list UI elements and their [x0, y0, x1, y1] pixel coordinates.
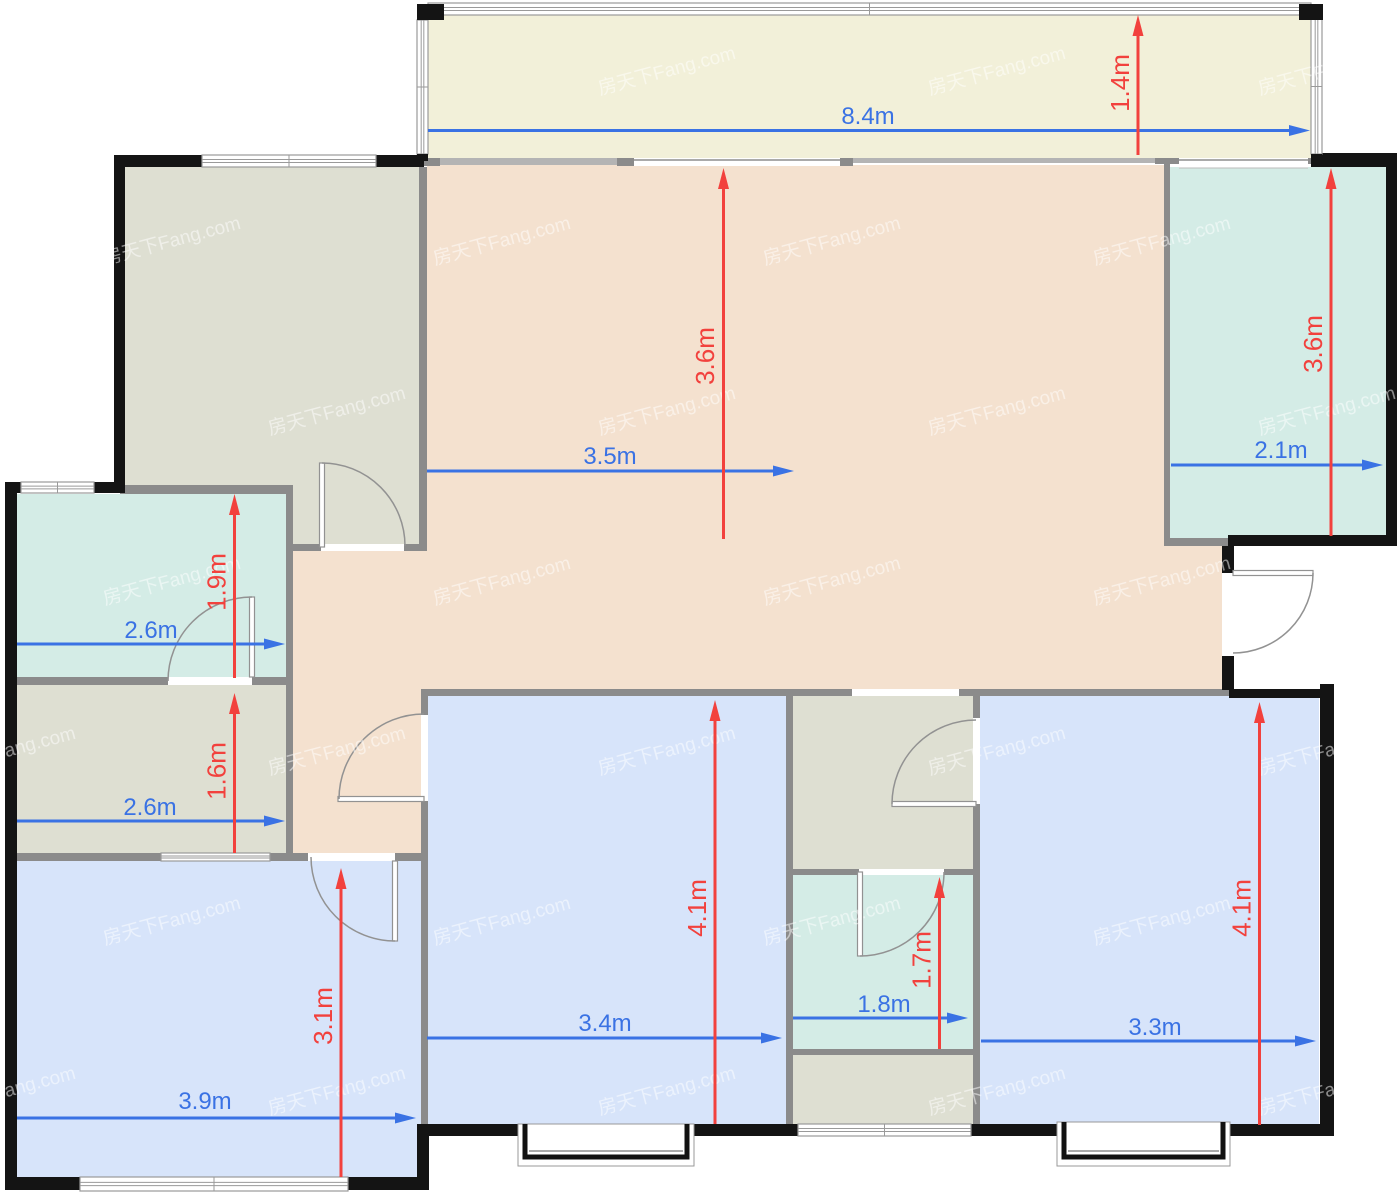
svg-text:8.4m: 8.4m: [841, 103, 894, 130]
svg-text:3.9m: 3.9m: [178, 1088, 231, 1115]
svg-text:3.6m: 3.6m: [1298, 315, 1328, 373]
svg-text:1.8m: 1.8m: [857, 991, 910, 1018]
svg-text:3.3m: 3.3m: [1128, 1014, 1181, 1041]
svg-text:3.5m: 3.5m: [583, 443, 636, 470]
svg-text:1.6m: 1.6m: [202, 742, 232, 800]
svg-text:2.6m: 2.6m: [124, 617, 177, 644]
svg-text:2.1m: 2.1m: [1254, 437, 1307, 464]
svg-text:1.4m: 1.4m: [1105, 54, 1135, 112]
svg-text:1.7m: 1.7m: [907, 931, 937, 989]
svg-text:3.1m: 3.1m: [308, 987, 338, 1045]
svg-text:3.6m: 3.6m: [690, 327, 720, 385]
svg-text:2.6m: 2.6m: [123, 794, 176, 821]
svg-text:4.1m: 4.1m: [682, 879, 712, 937]
svg-text:1.9m: 1.9m: [202, 553, 232, 611]
svg-text:4.1m: 4.1m: [1227, 879, 1257, 937]
svg-text:3.4m: 3.4m: [578, 1010, 631, 1037]
